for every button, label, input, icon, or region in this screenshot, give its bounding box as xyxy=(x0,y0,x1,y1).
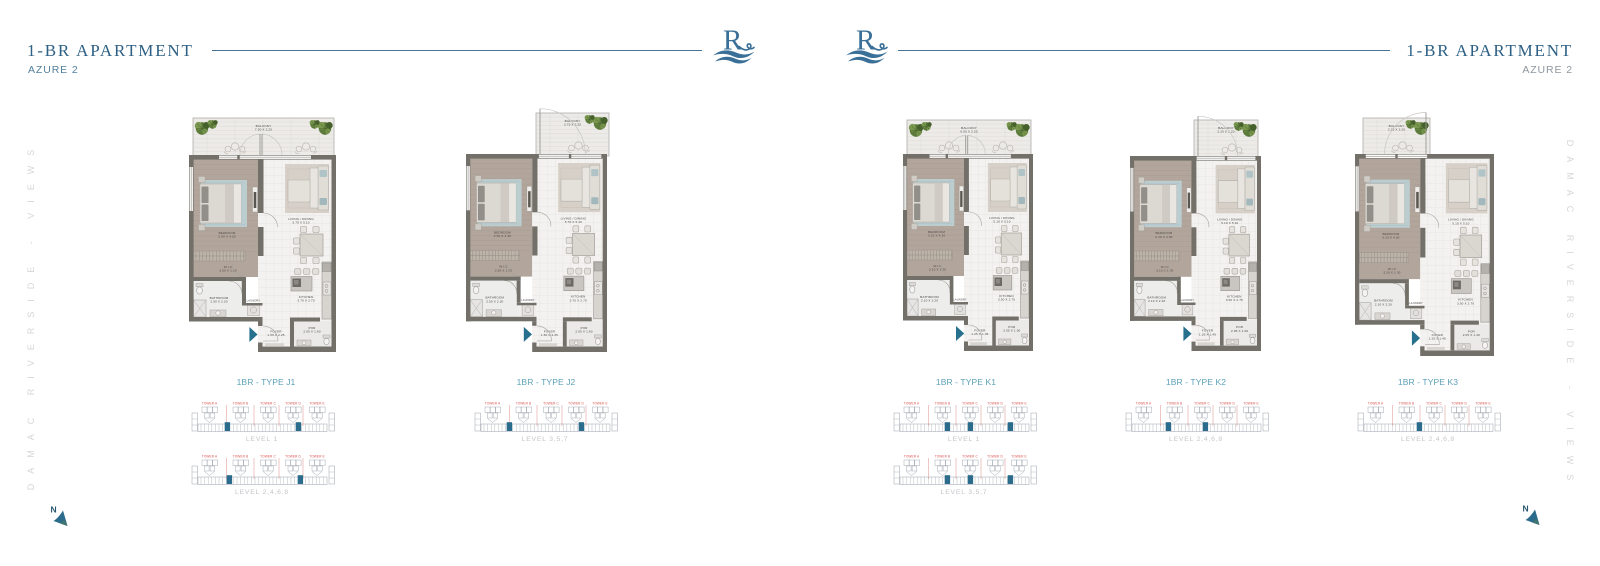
svg-text:TOWER E: TOWER E xyxy=(1011,455,1027,459)
svg-text:TOWER D: TOWER D xyxy=(285,455,301,459)
svg-text:TOWER C: TOWER C xyxy=(962,402,978,406)
svg-text:TOWER E: TOWER E xyxy=(1011,402,1027,406)
svg-text:2.05 X 1.00: 2.05 X 1.00 xyxy=(1231,329,1248,333)
svg-text:TOWER B: TOWER B xyxy=(232,402,248,406)
svg-text:N: N xyxy=(1523,504,1529,514)
svg-text:TOWER B: TOWER B xyxy=(1398,402,1414,406)
svg-text:TOWER E: TOWER E xyxy=(1475,402,1491,406)
svg-text:2.50 X 4.30: 2.50 X 4.30 xyxy=(218,235,235,239)
svg-text:2.05 X 1.60: 2.05 X 1.60 xyxy=(575,330,592,334)
svg-text:TOWER D: TOWER D xyxy=(1219,402,1235,406)
svg-text:1.25 X 1.45: 1.25 X 1.45 xyxy=(1199,332,1216,336)
svg-text:TOWER B: TOWER B xyxy=(232,455,248,459)
svg-text:LAUNDRY: LAUNDRY xyxy=(953,298,967,302)
svg-text:TOWER A: TOWER A xyxy=(201,455,217,459)
svg-text:TOWER A: TOWER A xyxy=(1135,402,1151,406)
svg-text:LAUNDRY: LAUNDRY xyxy=(1181,298,1195,302)
svg-text:2.10 X 2.20: 2.10 X 2.20 xyxy=(1148,299,1165,303)
svg-text:2.50 X 2.20: 2.50 X 2.20 xyxy=(486,299,503,303)
svg-text:TOWER B: TOWER B xyxy=(934,402,950,406)
svg-text:1.25 X 1.45: 1.25 X 1.45 xyxy=(1429,337,1446,341)
svg-text:2.25 X 2.20: 2.25 X 2.20 xyxy=(1217,130,1234,134)
svg-text:6.50 X 2.20: 6.50 X 2.20 xyxy=(960,130,977,134)
svg-text:1.50 X 2.25: 1.50 X 2.25 xyxy=(541,333,558,337)
svg-text:TOWER C: TOWER C xyxy=(1194,402,1210,406)
svg-text:TOWER D: TOWER D xyxy=(987,402,1003,406)
svg-text:2.10 X 4.30: 2.10 X 4.30 xyxy=(928,234,945,238)
svg-text:2.10 X 2.20: 2.10 X 2.20 xyxy=(1375,302,1392,306)
svg-text:5.10 X 5.10: 5.10 X 5.10 xyxy=(993,220,1010,224)
svg-text:TOWER A: TOWER A xyxy=(484,402,500,406)
svg-text:3.70 X 2.70: 3.70 X 2.70 xyxy=(297,299,314,303)
svg-text:TOWER A: TOWER A xyxy=(1367,402,1383,406)
svg-text:TOWER C: TOWER C xyxy=(260,402,276,406)
svg-text:TOWER C: TOWER C xyxy=(962,455,978,459)
svg-text:TOWER D: TOWER D xyxy=(987,455,1003,459)
svg-text:3.70 X 2.70: 3.70 X 2.70 xyxy=(570,298,587,302)
svg-text:1.25 X 1.45: 1.25 X 1.45 xyxy=(971,332,988,336)
svg-text:2.50 X 4.30: 2.50 X 4.30 xyxy=(494,234,511,238)
svg-text:2.25 X 2.20: 2.25 X 2.20 xyxy=(1388,128,1405,132)
svg-text:2.10 X 2.20: 2.10 X 2.20 xyxy=(921,299,938,303)
svg-text:2.05 X 1.00: 2.05 X 1.00 xyxy=(1003,329,1020,333)
svg-text:3.50 X 2.75: 3.50 X 2.75 xyxy=(998,298,1015,302)
svg-text:TOWER A: TOWER A xyxy=(903,455,919,459)
svg-text:TOWER D: TOWER D xyxy=(285,402,301,406)
svg-text:TOWER E: TOWER E xyxy=(309,455,325,459)
svg-text:TOWER A: TOWER A xyxy=(903,402,919,406)
svg-text:7.50 X 2.20: 7.50 X 2.20 xyxy=(255,128,272,132)
svg-text:TOWER B: TOWER B xyxy=(515,402,531,406)
svg-text:5.70 X 5.10: 5.70 X 5.10 xyxy=(565,220,582,224)
svg-text:2.05 X 1.40: 2.05 X 1.40 xyxy=(1463,333,1480,337)
svg-text:TOWER C: TOWER C xyxy=(1426,402,1442,406)
svg-text:TOWER B: TOWER B xyxy=(1166,402,1182,406)
svg-text:LAUNDRY: LAUNDRY xyxy=(521,298,535,302)
svg-text:TOWER D: TOWER D xyxy=(568,402,584,406)
svg-text:LAUNDRY: LAUNDRY xyxy=(247,299,261,303)
svg-text:TOWER D: TOWER D xyxy=(1451,402,1467,406)
svg-text:TOWER B: TOWER B xyxy=(934,455,950,459)
svg-text:3.50 X 1.00: 3.50 X 1.00 xyxy=(495,268,512,272)
svg-text:2.05 X 1.60: 2.05 X 1.60 xyxy=(303,330,320,334)
svg-text:5.70 X 5.10: 5.70 X 5.10 xyxy=(292,221,309,225)
svg-text:TOWER E: TOWER E xyxy=(1243,402,1259,406)
svg-text:2.10 X 4.30: 2.10 X 4.30 xyxy=(1382,236,1399,240)
svg-text:TOWER C: TOWER C xyxy=(543,402,559,406)
svg-text:3.75 X 2.20: 3.75 X 2.20 xyxy=(564,123,581,127)
svg-text:3.50 X 2.75: 3.50 X 2.75 xyxy=(1226,298,1243,302)
svg-text:2.10 X 4.30: 2.10 X 4.30 xyxy=(1155,235,1172,239)
svg-text:N: N xyxy=(51,505,57,515)
svg-text:2.50 X 2.20: 2.50 X 2.20 xyxy=(210,300,227,304)
svg-text:5.10 X 5.10: 5.10 X 5.10 xyxy=(1221,221,1238,225)
svg-text:TOWER E: TOWER E xyxy=(309,402,325,406)
svg-text:5.10 X 5.10: 5.10 X 5.10 xyxy=(1452,221,1469,225)
svg-text:TOWER A: TOWER A xyxy=(201,402,217,406)
svg-text:TOWER E: TOWER E xyxy=(592,402,608,406)
svg-text:3.50 X 2.70: 3.50 X 2.70 xyxy=(1457,301,1474,305)
svg-text:TOWER C: TOWER C xyxy=(260,455,276,459)
svg-text:LAUNDRY: LAUNDRY xyxy=(1409,301,1423,305)
